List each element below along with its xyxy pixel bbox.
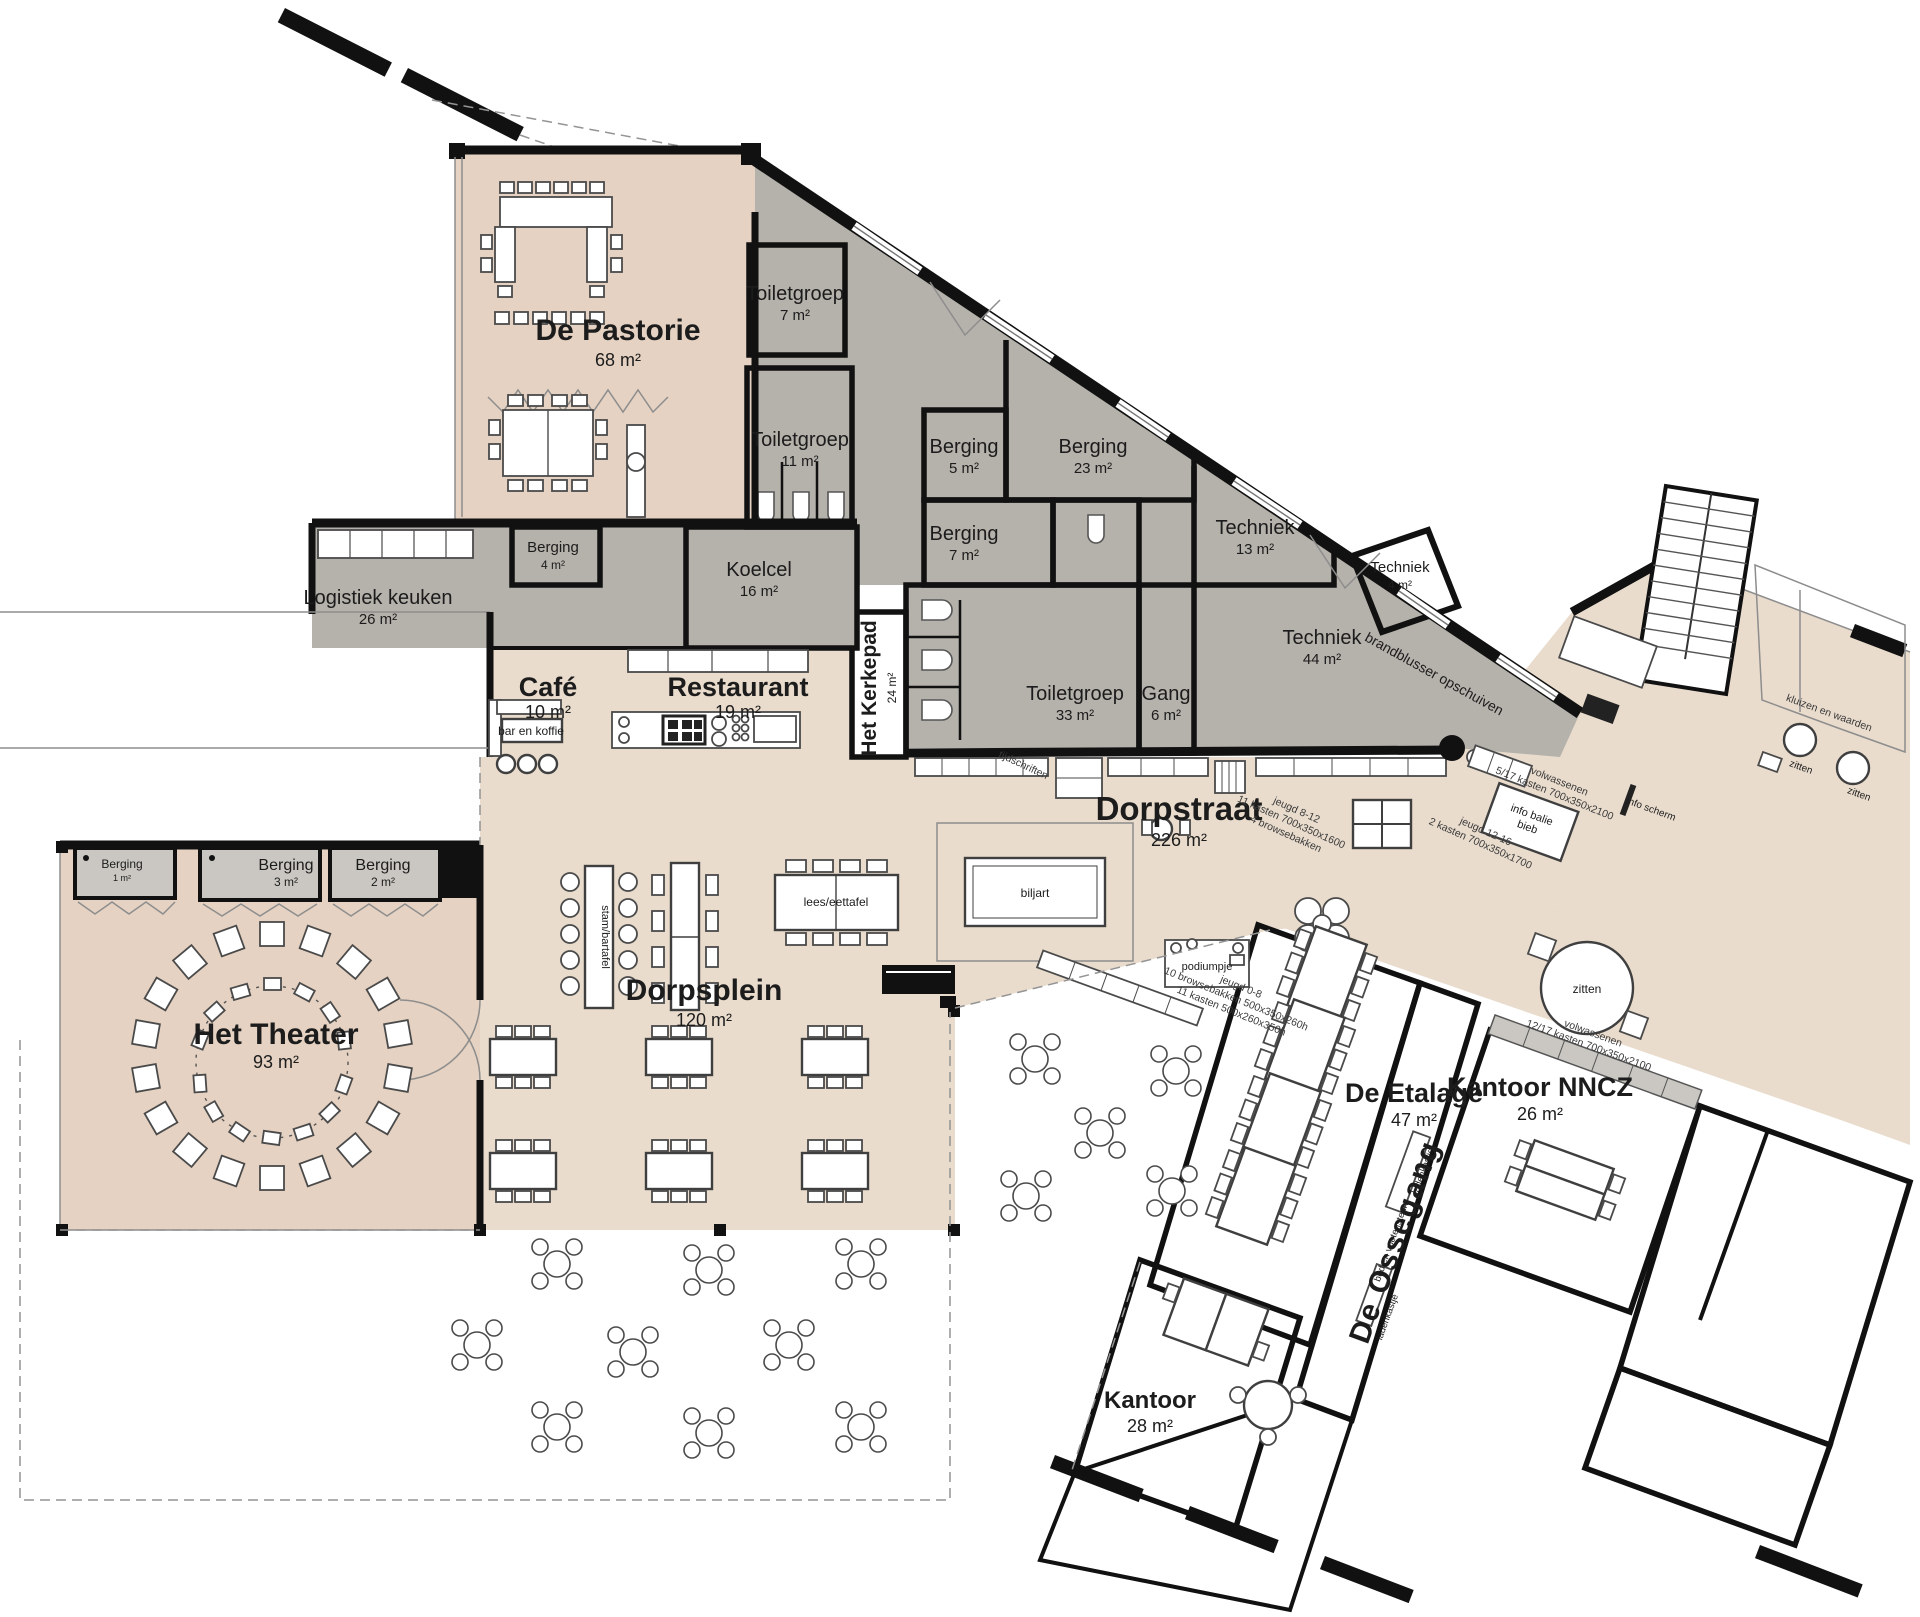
label-berging23: Berging <box>1059 436 1128 458</box>
label-toiletgroep11-area: 11 m² <box>781 453 818 470</box>
label-cafe: Café <box>519 672 578 702</box>
label-techniek44-area: 44 m² <box>1303 651 1341 668</box>
label-toiletgroep11: Toiletgroep <box>751 429 849 451</box>
label-theater-area: 93 m² <box>253 1052 299 1072</box>
label-dorpstraat: Dorpstraat <box>1096 790 1263 827</box>
label-toiletgroep7: Toiletgroep <box>746 283 844 305</box>
wing-room-east <box>1620 1106 1910 1445</box>
label-berging7: Berging <box>930 523 999 545</box>
label-berging23-area: 23 m² <box>1074 460 1112 477</box>
label-berging4-area: 4 m² <box>541 558 565 572</box>
label-techniek13: Techniek <box>1216 517 1296 539</box>
label-gang: Gang <box>1142 683 1191 705</box>
label-lees-eettafel: lees/eettafel <box>804 895 869 909</box>
label-logistiek-area: 26 m² <box>359 611 397 628</box>
label-techniek13-area: 13 m² <box>1236 541 1274 558</box>
label-berging3: Berging <box>258 857 313 874</box>
label-dorpsplein-area: 120 m² <box>676 1010 732 1030</box>
label-kerkepad-area: 24 m² <box>885 673 899 704</box>
label-berging1-area: 1 m² <box>113 873 131 883</box>
label-berging3-area: 3 m² <box>274 875 298 889</box>
label-toiletgroep33: Toiletgroep <box>1026 683 1124 705</box>
label-toiletgroep33-area: 33 m² <box>1056 707 1094 724</box>
label-kantoor-nncz-area: 26 m² <box>1517 1104 1563 1124</box>
kitchen-counter <box>318 530 473 558</box>
kantoor-round-table <box>1230 1381 1306 1445</box>
label-berging2-area: 2 m² <box>371 875 395 889</box>
label-berging5-area: 5 m² <box>949 460 979 477</box>
label-cafe-area: 10 m² <box>525 702 571 722</box>
label-berging4: Berging <box>527 539 579 556</box>
label-gang-area: 6 m² <box>1151 707 1181 724</box>
label-theater: Het Theater <box>193 1018 358 1051</box>
label-berging7-area: 7 m² <box>949 547 979 564</box>
label-koelcel: Koelcel <box>726 559 792 581</box>
label-toiletgroep7-area: 7 m² <box>780 307 810 324</box>
label-dorpstraat-area: 226 m² <box>1151 830 1207 850</box>
label-berging5: Berging <box>930 436 999 458</box>
label-stam-bartafel: stam/bartafel <box>599 905 611 969</box>
floor-plan-page: De Pastorie 68 m² Toiletgroep 7 m² Toile… <box>0 0 1920 1617</box>
label-techniek4: Techniek <box>1370 559 1430 576</box>
label-kantoor-area: 28 m² <box>1127 1416 1173 1436</box>
label-pastorie: De Pastorie <box>535 314 700 347</box>
label-podiumpje: podiumpje <box>1182 961 1233 973</box>
label-berging1: Berging <box>101 857 142 871</box>
entry-grate <box>1215 761 1245 793</box>
floor-plan-drawing: De Pastorie 68 m² Toiletgroep 7 m² Toile… <box>0 0 1920 1617</box>
label-bar-en-koffie: bar en koffie <box>498 724 564 738</box>
label-zitten-1: zitten <box>1573 982 1602 996</box>
label-kantoor-nncz: Kantoor NNCZ <box>1447 1072 1633 1102</box>
label-restaurant-area: 19 m² <box>715 702 761 722</box>
label-etalage-area: 47 m² <box>1391 1110 1437 1130</box>
label-techniek44: Techniek <box>1283 627 1363 649</box>
label-pastorie-area: 68 m² <box>595 350 641 370</box>
label-biljart: biljart <box>1021 886 1050 900</box>
wing-room-south <box>1585 1368 1830 1545</box>
label-restaurant: Restaurant <box>667 672 808 702</box>
label-dorpsplein: Dorpsplein <box>626 974 783 1007</box>
label-kantoor: Kantoor <box>1104 1387 1196 1414</box>
nncz-desks <box>1503 1135 1627 1224</box>
label-koelcel-area: 16 m² <box>740 583 778 600</box>
column <box>1439 735 1465 761</box>
label-kerkepad: Het Kerkepad <box>858 620 881 755</box>
label-techniek4-area: 4 m² <box>1388 578 1412 592</box>
label-berging2: Berging <box>355 857 410 874</box>
label-logistiek: Logistiek keuken <box>304 587 453 609</box>
